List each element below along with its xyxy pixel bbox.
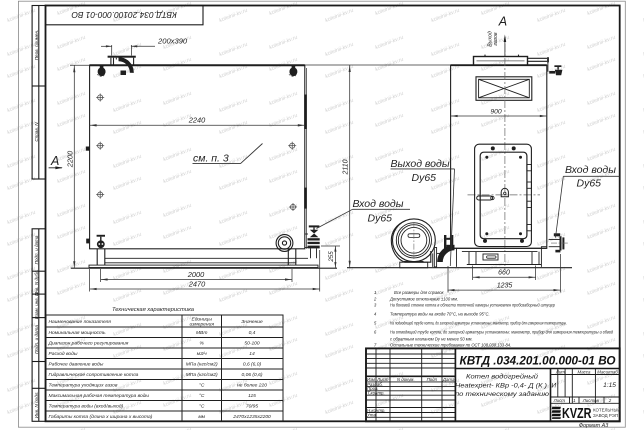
svg-text:КОТЕЛЬНЫЙ: КОТЕЛЬНЫЙ xyxy=(593,408,621,413)
svg-text:Т.контр.: Т.контр. xyxy=(367,391,385,396)
svg-text:Подп. и дата: Подп. и дата xyxy=(34,235,39,264)
svg-text:с обратным клапаном Dу не мене: с обратным клапаном Dу не менее 50 мм. xyxy=(390,337,473,342)
svg-text:255: 255 xyxy=(328,251,335,263)
svg-text:Heatexpert- КВр -0,4- Д (К ): Heatexpert- КВр -0,4- Д (К ) xyxy=(455,382,547,389)
svg-text:70/95: 70/95 xyxy=(246,404,259,410)
svg-text:0,6 (6,0): 0,6 (6,0) xyxy=(243,362,262,368)
svg-text:мм: мм xyxy=(198,415,205,420)
svg-text:Габариты котла (длина х ширина: Габариты котла (длина х ширина х высота) xyxy=(49,414,153,420)
svg-text:Температура уходящих газов: Температура уходящих газов xyxy=(49,383,118,389)
svg-text:2470: 2470 xyxy=(188,279,206,288)
svg-text:На подводящей трубе котла, до: На подводящей трубе котла, до запорной а… xyxy=(390,321,567,326)
svg-text:Котел водогрейный: Котел водогрейный xyxy=(466,373,539,380)
svg-text:°С: °С xyxy=(199,393,205,399)
svg-text:115: 115 xyxy=(248,393,256,399)
svg-text:А: А xyxy=(498,14,507,28)
svg-text:Номинальная мощность: Номинальная мощность xyxy=(49,330,107,336)
svg-text:ЗАВОД РЭП: ЗАВОД РЭП xyxy=(593,413,618,418)
svg-text:1:15: 1:15 xyxy=(603,382,616,389)
svg-text:измерения: измерения xyxy=(189,323,214,328)
svg-text:А: А xyxy=(50,154,59,168)
svg-text:Допустимое отклонение ±100 мм.: Допустимое отклонение ±100 мм. xyxy=(389,296,458,301)
svg-text:Вход воды: Вход воды xyxy=(353,198,404,210)
svg-text:1235: 1235 xyxy=(497,283,513,290)
svg-text:Гидравлическое сопротивление к: Гидравлическое сопротивление котла xyxy=(49,372,139,378)
svg-text:И: И xyxy=(552,382,557,389)
svg-text:Инв. N дубл.: Инв. N дубл. xyxy=(34,269,39,296)
svg-text:Инв. N подл.: Инв. N подл. xyxy=(34,391,39,418)
svg-text:КВТД.034.20100.000-01 ВО: КВТД.034.20100.000-01 ВО xyxy=(71,10,177,20)
svg-text:МПа (кгс/см2): МПа (кгс/см2) xyxy=(186,362,218,368)
svg-text:Температура воды (вход/выход): Температура воды (вход/выход) xyxy=(49,404,124,410)
svg-text:Единицы: Единицы xyxy=(191,316,212,322)
svg-text:KVZR: KVZR xyxy=(562,405,592,422)
svg-text:см. п. 3: см. п. 3 xyxy=(193,153,229,165)
svg-text:газов: газов xyxy=(493,32,499,46)
svg-text:Подп: Подп xyxy=(427,377,438,382)
svg-text:Температура воды на входе 70°С: Температура воды на входе 70°С, на выход… xyxy=(390,312,490,317)
svg-text:2200: 2200 xyxy=(65,150,74,168)
svg-text:2110: 2110 xyxy=(343,159,350,175)
svg-text:Листов: Листов xyxy=(582,398,600,403)
svg-text:Масса: Масса xyxy=(578,370,592,375)
svg-text:Подп. и дата: Подп. и дата xyxy=(34,325,39,354)
svg-text:660: 660 xyxy=(498,270,510,277)
svg-text:N докум.: N докум. xyxy=(397,377,415,382)
svg-text:Максимальная рабочая температу: Максимальная рабочая температура воды xyxy=(49,393,150,399)
svg-text:не более 220: не более 220 xyxy=(237,383,267,389)
svg-text:Перв. примен.: Перв. примен. xyxy=(34,30,39,61)
svg-text:Dу65: Dу65 xyxy=(368,213,393,225)
svg-text:%: % xyxy=(200,341,205,347)
svg-text:Dу65: Dу65 xyxy=(577,178,602,190)
svg-text:50-100: 50-100 xyxy=(244,341,260,347)
svg-text:Все размеры для справок: Все размеры для справок xyxy=(394,290,445,295)
svg-text:Остальные технические требован: Остальные технические требования по ОСТ … xyxy=(390,343,511,348)
svg-text:2240: 2240 xyxy=(188,116,206,125)
svg-text:Вход воды: Вход воды xyxy=(565,164,616,176)
svg-text:На отводящей трубе котла, до з: На отводящей трубе котла, до запорной ар… xyxy=(390,330,614,335)
svg-text:КВТД .034.201.00.000-01 ВО: КВТД .034.201.00.000-01 ВО xyxy=(460,353,616,367)
svg-text:14: 14 xyxy=(249,351,255,357)
svg-text:2470х1235х2200: 2470х1235х2200 xyxy=(232,414,271,420)
svg-text:МВт: МВт xyxy=(196,330,207,336)
svg-text:°С: °С xyxy=(199,383,205,389)
svg-text:200х390: 200х390 xyxy=(157,37,188,46)
svg-text:Диапазон рабочего регулировани: Диапазон рабочего регулирования xyxy=(48,341,129,347)
svg-text:2: 2 xyxy=(608,398,612,403)
svg-text:Взам. инв. N: Взам. инв. N xyxy=(34,292,39,319)
svg-text:Наименование показателя: Наименование показателя xyxy=(49,319,112,325)
svg-text:Справ. N: Справ. N xyxy=(34,122,39,142)
svg-text:Масштаб: Масштаб xyxy=(597,370,618,375)
svg-text:На боковой стенке котла в обла: На боковой стенке котла в области топочн… xyxy=(390,302,556,307)
svg-text:МПа (кгс/см2): МПа (кгс/см2) xyxy=(186,372,218,378)
svg-text:Лит.: Лит. xyxy=(555,370,566,375)
svg-text:Утв.: Утв. xyxy=(367,413,377,418)
svg-text:Лист: Лист xyxy=(553,398,566,403)
svg-text:Рабочее давление воды: Рабочее давление воды xyxy=(49,362,104,368)
svg-text:Выход воды: Выход воды xyxy=(391,158,450,170)
svg-text:по техническому заданию: по техническому заданию xyxy=(455,391,550,398)
svg-text:°С: °С xyxy=(199,404,205,410)
svg-text:1: 1 xyxy=(374,290,376,295)
svg-text:0,06 (0,6): 0,06 (0,6) xyxy=(242,372,263,378)
svg-text:2000: 2000 xyxy=(187,270,205,279)
svg-text:м3/ч: м3/ч xyxy=(197,351,207,357)
svg-text:Значение: Значение xyxy=(241,319,263,325)
svg-text:900: 900 xyxy=(490,108,502,115)
svg-text:Техническая характеристика: Техническая характеристика xyxy=(112,307,195,313)
svg-text:0,4: 0,4 xyxy=(249,330,256,336)
svg-text:Dу65: Dу65 xyxy=(412,172,437,184)
svg-text:Расход воды: Расход воды xyxy=(49,351,78,357)
svg-text:Дата: Дата xyxy=(442,377,455,382)
svg-text:Формат А3: Формат А3 xyxy=(579,423,609,429)
